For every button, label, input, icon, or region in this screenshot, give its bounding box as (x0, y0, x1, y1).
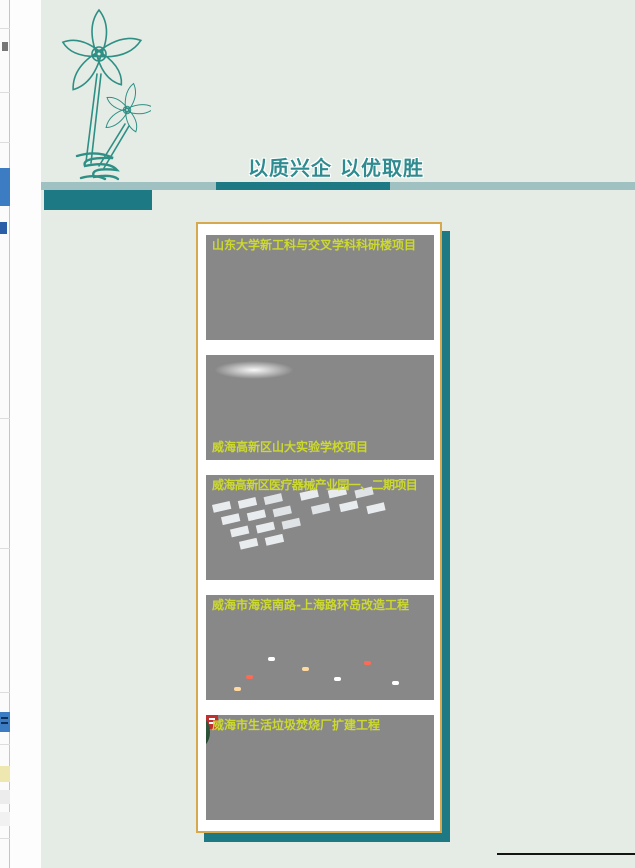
background-window-sliver[interactable] (0, 0, 10, 868)
project-card-ring-road-renovation[interactable]: 威海市海滨南路-上海路环岛改造工程 (206, 595, 434, 700)
sliver-divider-line (0, 142, 10, 143)
sliver-divider-line (0, 744, 10, 745)
project-showcase-panel: 山东大学新工科与交叉学科科研楼项目 威海高新区山大实验学校项目 (196, 222, 442, 833)
sliver-divider-line (0, 28, 10, 29)
sliver-gray-row (0, 790, 10, 804)
project-caption: 威海市生活垃圾焚烧厂扩建工程 (212, 718, 432, 733)
accent-bar-light-left (41, 182, 216, 190)
sliver-blue-header (0, 712, 10, 732)
project-card-shandong-university[interactable]: 山东大学新工科与交叉学科科研楼项目 (206, 235, 434, 340)
sliver-blue-button (0, 222, 7, 234)
project-card-shanda-experimental-school[interactable]: 威海高新区山大实验学校项目 (206, 355, 434, 460)
sliver-divider-line (0, 548, 10, 549)
bottom-horizontal-rule (497, 853, 635, 855)
sliver-divider-line (0, 692, 10, 693)
art-car-lights (268, 657, 275, 661)
accent-bar-dark-middle (216, 182, 390, 190)
sliver-divider-line (0, 418, 10, 419)
project-caption: 威海市海滨南路-上海路环岛改造工程 (212, 598, 432, 613)
sliver-gray-row (0, 812, 10, 826)
project-caption: 威海高新区山大实验学校项目 (212, 440, 432, 455)
sliver-text-fragment (2, 42, 8, 51)
teal-nav-block[interactable] (44, 190, 152, 210)
art-cloud (214, 361, 294, 379)
page-root: 以质兴企 以优取胜 山东大学新工科与交叉学科科研楼项目 (0, 0, 635, 868)
sliver-divider-line (0, 838, 10, 839)
flower-line-art-icon (51, 6, 151, 188)
project-card-waste-incineration-plant[interactable]: 威海市生活垃圾焚烧厂扩建工程 (206, 715, 434, 820)
accent-bar (41, 182, 635, 190)
accent-bar-light-right (390, 182, 635, 190)
sliver-divider-line (0, 92, 10, 93)
company-slogan: 以质兴企 以优取胜 (201, 152, 471, 181)
art-building-blocks (212, 501, 231, 513)
project-caption: 威海高新区医疗器械产业园一、二期项目 (212, 478, 432, 493)
project-caption: 山东大学新工科与交叉学科科研楼项目 (212, 238, 432, 253)
art-road (206, 475, 207, 480)
sliver-blue-banner (0, 168, 10, 206)
sliver-highlight-row (0, 766, 10, 782)
project-card-medical-device-park[interactable]: 威海高新区医疗器械产业园一、二期项目 (206, 475, 434, 580)
main-content-area: 以质兴企 以优取胜 山东大学新工科与交叉学科科研楼项目 (41, 0, 635, 868)
